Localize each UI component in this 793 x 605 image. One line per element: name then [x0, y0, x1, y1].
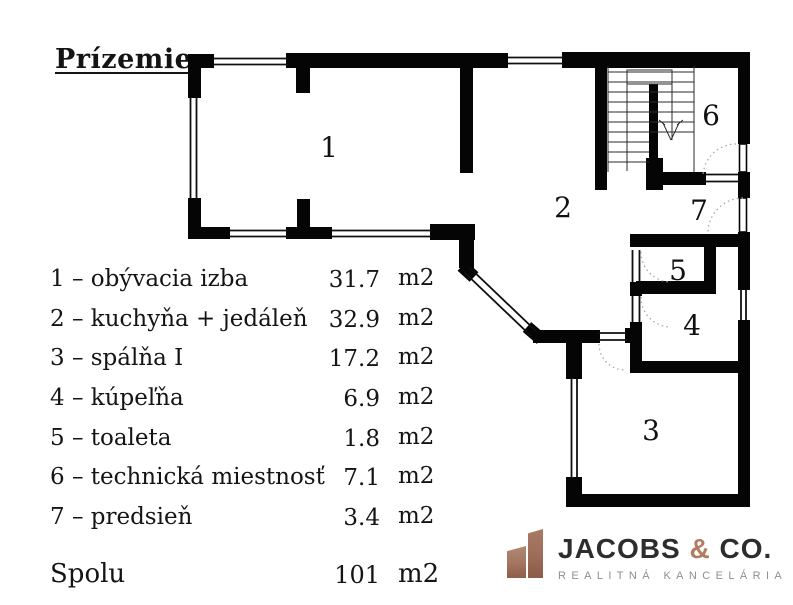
- room-area: 32.9: [240, 307, 380, 333]
- brand-secondary: CO.: [711, 533, 773, 564]
- door-openings: [598, 175, 738, 341]
- room-label-2: 2: [554, 191, 572, 224]
- room-name: 7 – predsieň: [50, 504, 192, 530]
- brand-name: JACOBS & CO.: [558, 533, 787, 565]
- room-name: 4 – kúpeľňa: [50, 385, 184, 411]
- room-area: 3.4: [240, 505, 380, 531]
- logo-text: JACOBS & CO. REALITNÁ KANCELÁRIA: [558, 533, 787, 582]
- room-label-4: 4: [683, 309, 701, 342]
- legend-row-1: 1 – obývacia izba 31.7 m2: [40, 266, 460, 298]
- room-area: 31.7: [240, 267, 380, 293]
- buildings-icon: [498, 526, 548, 582]
- area-unit: m2: [398, 559, 439, 589]
- brand-subtitle: REALITNÁ KANCELÁRIA: [558, 570, 787, 582]
- total-label: Spolu: [50, 559, 125, 589]
- room-area: 17.2: [240, 346, 380, 372]
- stair-direction-arrow: [659, 120, 683, 140]
- room-label-7: 7: [690, 194, 708, 227]
- brand-primary: JACOBS: [558, 533, 689, 564]
- area-unit: m2: [398, 305, 434, 331]
- room-area: 6.9: [240, 386, 380, 412]
- room-label-5: 5: [669, 254, 687, 287]
- area-unit: m2: [398, 265, 434, 291]
- room-label-3: 3: [642, 414, 660, 447]
- legend-row-2: 2 – kuchyňa + jedáleň 32.9 m2: [40, 306, 460, 338]
- legend-row-7: 7 – predsieň 3.4 m2: [40, 504, 460, 536]
- floorplan-page: Prízemie: [0, 0, 793, 605]
- total-area: 101: [240, 561, 380, 589]
- area-unit: m2: [398, 463, 434, 489]
- legend-row-3: 3 – spálňa I 17.2 m2: [40, 345, 460, 377]
- brand-ampersand: &: [689, 533, 710, 564]
- legend-row-6: 6 – technická miestnosť 7.1 m2: [40, 464, 460, 496]
- area-unit: m2: [398, 384, 434, 410]
- room-label-6: 6: [702, 99, 720, 132]
- room-area: 7.1: [240, 465, 380, 491]
- room-name: 3 – spálňa I: [50, 345, 183, 371]
- room-label-1: 1: [320, 131, 338, 164]
- agency-logo: JACOBS & CO. REALITNÁ KANCELÁRIA: [498, 526, 778, 588]
- area-unit: m2: [398, 424, 434, 450]
- room-name: 5 – toaleta: [50, 425, 171, 451]
- legend-row-5: 5 – toaleta 1.8 m2: [40, 425, 460, 457]
- area-unit: m2: [398, 344, 434, 370]
- room-name: 1 – obývacia izba: [50, 266, 248, 292]
- legend-row-4: 4 – kúpeľňa 6.9 m2: [40, 385, 460, 417]
- building-bar-tall: [528, 529, 543, 578]
- area-unit: m2: [398, 503, 434, 529]
- room-area: 1.8: [240, 426, 380, 452]
- building-bar-short: [507, 546, 526, 578]
